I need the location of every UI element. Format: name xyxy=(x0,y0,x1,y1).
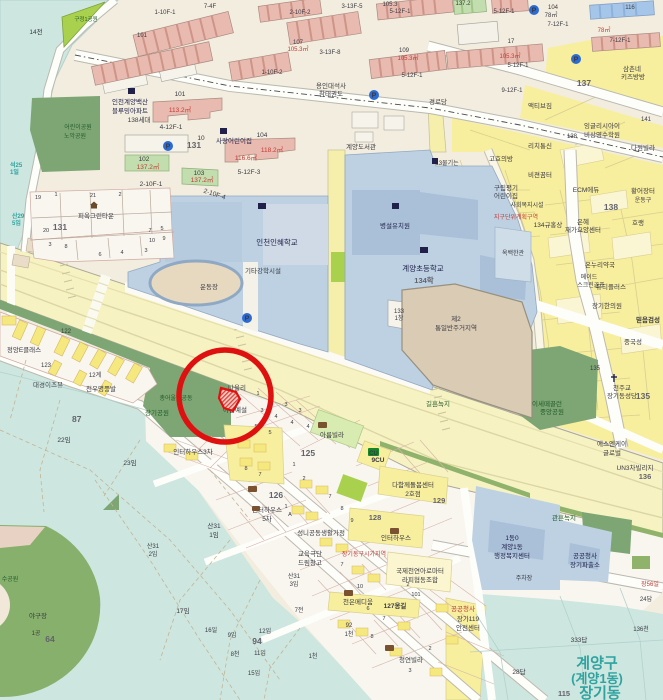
svg-text:2임: 2임 xyxy=(149,550,158,558)
svg-text:호랭: 호랭 xyxy=(632,218,644,227)
svg-text:중국성: 중국성 xyxy=(624,337,642,346)
svg-text:1-10F-2: 1-10F-2 xyxy=(261,70,283,76)
svg-text:잉글리시아이: 잉글리시아이 xyxy=(584,121,620,130)
svg-text:24답: 24답 xyxy=(640,596,653,603)
svg-text:석25: 석25 xyxy=(10,161,23,169)
svg-text:105.3: 105.3 xyxy=(382,2,398,8)
svg-text:105.3㎡: 105.3㎡ xyxy=(397,54,418,62)
svg-text:5: 5 xyxy=(160,226,163,232)
svg-text:안전센터: 안전센터 xyxy=(456,623,480,632)
svg-text:A: A xyxy=(288,512,292,518)
svg-text:1일: 1일 xyxy=(10,168,19,176)
svg-text:재가요양센터: 재가요양센터 xyxy=(565,225,601,234)
svg-text:5-12F-3: 5-12F-3 xyxy=(238,169,261,176)
svg-text:뷰티플러스: 뷰티플러스 xyxy=(596,282,626,291)
svg-text:계양1동: 계양1동 xyxy=(501,542,523,551)
svg-text:1천: 1천 xyxy=(309,652,318,660)
svg-text:드림창고: 드림창고 xyxy=(298,559,322,567)
svg-text:공공청사: 공공청사 xyxy=(451,604,475,613)
svg-text:어린이집: 어린이집 xyxy=(494,191,518,200)
svg-text:3-13F-5: 3-13F-5 xyxy=(341,4,363,10)
svg-text:1-10F-1: 1-10F-1 xyxy=(154,10,176,16)
svg-text:78㎡: 78㎡ xyxy=(598,26,611,34)
svg-text:22임: 22임 xyxy=(57,436,70,444)
svg-text:136천: 136천 xyxy=(633,625,649,633)
svg-text:5-12F-1: 5-12F-1 xyxy=(389,9,411,15)
svg-text:고효의방: 고효의방 xyxy=(489,154,513,163)
svg-text:135: 135 xyxy=(590,366,601,372)
svg-text:8: 8 xyxy=(244,466,247,472)
svg-text:운동장: 운동장 xyxy=(200,282,218,291)
svg-text:7: 7 xyxy=(328,494,331,500)
svg-text:7: 7 xyxy=(382,616,385,622)
svg-text:다함께돌봄센터: 다함께돌봄센터 xyxy=(392,480,434,489)
svg-text:9임: 9임 xyxy=(228,631,237,639)
svg-text:1: 1 xyxy=(256,391,259,397)
svg-text:14전: 14전 xyxy=(29,27,42,36)
svg-text:2-10F-1: 2-10F-1 xyxy=(140,181,163,188)
svg-text:101: 101 xyxy=(175,91,186,98)
svg-text:3: 3 xyxy=(298,408,301,414)
svg-text:중앙공원: 중앙공원 xyxy=(540,407,564,416)
svg-text:128: 128 xyxy=(369,513,382,522)
svg-text:산31: 산31 xyxy=(147,542,160,550)
svg-text:7-12F-1: 7-12F-1 xyxy=(547,22,569,28)
svg-text:131: 131 xyxy=(53,222,67,232)
svg-text:78㎡: 78㎡ xyxy=(545,11,558,19)
svg-text:28답: 28답 xyxy=(512,668,525,676)
svg-text:12임: 12임 xyxy=(259,627,271,635)
svg-text:총어울림공동: 총어울림공동 xyxy=(159,394,193,402)
svg-text:계양도서관: 계양도서관 xyxy=(346,142,376,151)
svg-text:1: 1 xyxy=(284,504,287,510)
svg-text:3: 3 xyxy=(260,408,263,414)
svg-text:비상영수학원: 비상영수학원 xyxy=(584,130,620,139)
svg-text:9-12F-1: 9-12F-1 xyxy=(501,88,523,94)
svg-text:138세대: 138세대 xyxy=(128,115,151,124)
svg-text:133: 133 xyxy=(394,309,405,315)
svg-text:3: 3 xyxy=(284,402,287,408)
svg-text:3임: 3임 xyxy=(290,580,299,588)
svg-text:관훈녹지: 관훈녹지 xyxy=(552,513,576,522)
svg-text:3: 3 xyxy=(48,242,51,248)
svg-text:7: 7 xyxy=(258,472,261,478)
svg-text:옥백한관: 옥백한관 xyxy=(502,249,525,257)
svg-text:병설유치원: 병설유치원 xyxy=(380,221,410,230)
svg-text:통일반주거지역: 통일반주거지역 xyxy=(435,323,477,332)
svg-text:공공청사: 공공청사 xyxy=(573,551,597,560)
svg-text:CU: CU xyxy=(369,451,378,457)
svg-text:4: 4 xyxy=(306,424,309,430)
svg-text:115: 115 xyxy=(558,689,570,698)
svg-text:은혜: 은혜 xyxy=(577,217,589,226)
svg-text:105.3㎡: 105.3㎡ xyxy=(287,45,308,53)
svg-text:4: 4 xyxy=(290,420,293,426)
svg-text:10: 10 xyxy=(357,584,363,590)
svg-text:19: 19 xyxy=(35,195,41,201)
svg-text:333답: 333답 xyxy=(571,636,588,644)
svg-text:137: 137 xyxy=(577,78,591,88)
svg-text:2-10F-2: 2-10F-2 xyxy=(289,10,311,16)
svg-text:1동0: 1동0 xyxy=(505,534,519,542)
svg-text:94: 94 xyxy=(252,636,262,646)
svg-text:107: 107 xyxy=(293,40,304,46)
svg-text:인천계양백산: 인천계양백산 xyxy=(112,97,148,106)
svg-text:(계양1동): (계양1동) xyxy=(571,671,623,686)
svg-text:황어장터: 황어장터 xyxy=(631,186,655,195)
svg-text:125: 125 xyxy=(301,448,315,458)
svg-text:10: 10 xyxy=(149,238,155,244)
svg-text:138: 138 xyxy=(567,134,578,140)
svg-text:3-13F-8: 3-13F-8 xyxy=(319,50,341,56)
svg-text:5-12F-1: 5-12F-1 xyxy=(507,63,529,69)
svg-text:7-4F: 7-4F xyxy=(204,4,217,10)
svg-text:계양구: 계양구 xyxy=(576,655,618,672)
svg-text:인터하우스: 인터하우스 xyxy=(381,533,411,542)
svg-text:137.2㎡: 137.2㎡ xyxy=(137,162,160,171)
svg-text:구립평기: 구립평기 xyxy=(494,183,518,192)
svg-text:사회복지시설: 사회복지시설 xyxy=(510,201,543,209)
svg-text:수공원: 수공원 xyxy=(2,575,19,583)
svg-text:135: 135 xyxy=(636,391,650,401)
svg-text:5-12F-1: 5-12F-1 xyxy=(493,9,515,15)
svg-text:인터하우스3차: 인터하우스3차 xyxy=(173,447,213,456)
svg-text:101: 101 xyxy=(137,33,148,39)
svg-text:장기119: 장기119 xyxy=(457,614,480,623)
svg-text:23임: 23임 xyxy=(123,459,136,467)
svg-text:20: 20 xyxy=(43,228,49,234)
svg-text:산31: 산31 xyxy=(207,521,221,530)
svg-text:4-12F-1: 4-12F-1 xyxy=(160,124,183,131)
svg-text:장기한의원: 장기한의원 xyxy=(592,301,622,310)
svg-text:P: P xyxy=(245,316,250,323)
svg-text:137.2㎡: 137.2㎡ xyxy=(191,175,214,184)
svg-text:천우명풍발: 천우명풍발 xyxy=(86,384,116,393)
svg-text:2: 2 xyxy=(118,192,121,198)
svg-text:이세떼끌런: 이세떼끌런 xyxy=(532,399,562,408)
svg-text:129: 129 xyxy=(433,496,446,505)
svg-text:92: 92 xyxy=(346,623,353,629)
svg-text:1: 1 xyxy=(54,192,57,198)
svg-text:2: 2 xyxy=(428,646,431,652)
svg-text:104: 104 xyxy=(548,5,559,11)
svg-text:천은메디움: 천은메디움 xyxy=(343,597,373,606)
svg-text:ECM에듀: ECM에듀 xyxy=(573,185,599,194)
svg-text:2: 2 xyxy=(302,476,305,482)
svg-text:15임: 15임 xyxy=(248,669,260,677)
svg-text:장기동: 장기동 xyxy=(579,684,621,700)
svg-text:7: 7 xyxy=(340,562,343,568)
svg-text:4: 4 xyxy=(120,250,123,256)
svg-text:메이드: 메이드 xyxy=(581,273,598,281)
svg-text:UN3차빌리지: UN3차빌리지 xyxy=(617,463,654,472)
svg-text:5: 5 xyxy=(268,430,271,436)
svg-text:134학: 134학 xyxy=(414,275,434,285)
svg-text:제2: 제2 xyxy=(451,315,461,323)
svg-text:P: P xyxy=(532,8,537,15)
svg-text:국제천연아로마터: 국제천연아로마터 xyxy=(396,566,444,575)
svg-text:천주교: 천주교 xyxy=(613,383,631,392)
svg-text:야구장: 야구장 xyxy=(29,611,47,620)
svg-text:에스엔케이: 에스엔케이 xyxy=(597,439,627,448)
svg-text:다원빌라: 다원빌라 xyxy=(631,143,655,152)
svg-text:5임: 5임 xyxy=(12,219,21,227)
svg-text:7-12F-1: 7-12F-1 xyxy=(609,38,631,44)
svg-text:138: 138 xyxy=(604,202,618,212)
svg-text:5-12F-1: 5-12F-1 xyxy=(401,73,423,79)
svg-text:8: 8 xyxy=(64,244,67,250)
svg-text:정앙E클래스: 정앙E클래스 xyxy=(7,345,41,354)
svg-text:87: 87 xyxy=(72,414,82,424)
svg-text:산31: 산31 xyxy=(288,572,301,580)
svg-text:행정복지센터: 행정복지센터 xyxy=(494,551,530,560)
svg-text:교육극단: 교육극단 xyxy=(298,549,322,558)
svg-text:1: 1 xyxy=(292,462,295,468)
svg-text:64: 64 xyxy=(45,634,55,644)
svg-text:2호점: 2호점 xyxy=(405,490,421,498)
svg-text:인천인혜학교: 인천인혜학교 xyxy=(256,237,297,247)
svg-text:노악공원: 노악공원 xyxy=(64,132,86,140)
svg-text:104: 104 xyxy=(257,132,268,139)
svg-text:라피협동조합: 라피협동조합 xyxy=(402,575,438,584)
svg-text:5차: 5차 xyxy=(262,514,272,523)
svg-text:134규홍상: 134규홍상 xyxy=(534,220,563,229)
svg-text:블루밍아파트: 블루밍아파트 xyxy=(112,106,148,115)
svg-text:101: 101 xyxy=(411,592,420,598)
svg-text:105.3㎡: 105.3㎡ xyxy=(499,52,520,60)
svg-text:102: 102 xyxy=(139,156,150,163)
svg-text:8: 8 xyxy=(370,634,373,640)
svg-text:믿음검성: 믿음검성 xyxy=(636,315,660,324)
svg-text:136: 136 xyxy=(639,472,652,481)
svg-text:장기동구시가지역: 장기동구시가지역 xyxy=(342,550,386,558)
svg-text:용인대석사: 용인대석사 xyxy=(316,81,346,90)
svg-text:성니공동생활가정: 성니공동생활가정 xyxy=(297,528,345,537)
svg-text:6: 6 xyxy=(366,606,369,612)
svg-text:장56일: 장56일 xyxy=(641,580,659,588)
svg-text:116: 116 xyxy=(625,5,635,11)
svg-text:계양초등학교: 계양초등학교 xyxy=(402,263,443,273)
svg-text:11임: 11임 xyxy=(254,649,266,657)
svg-text:116.6㎡: 116.6㎡ xyxy=(235,153,258,162)
svg-text:사랑어린이집: 사랑어린이집 xyxy=(216,136,252,145)
svg-text:1창: 1창 xyxy=(395,314,404,322)
svg-text:운동구: 운동구 xyxy=(635,197,652,204)
svg-text:113.2㎡: 113.2㎡ xyxy=(169,105,192,114)
svg-text:6: 6 xyxy=(98,252,101,258)
svg-text:127옹길: 127옹길 xyxy=(384,601,407,610)
svg-text:8: 8 xyxy=(340,506,343,512)
svg-text:109: 109 xyxy=(399,48,410,54)
svg-text:기타강학시설: 기타강학시설 xyxy=(245,266,281,275)
svg-text:1임: 1임 xyxy=(209,531,219,539)
svg-text:산29: 산29 xyxy=(12,212,25,220)
svg-text:아름빌라: 아름빌라 xyxy=(320,430,344,439)
svg-text:글로벌: 글로벌 xyxy=(603,448,621,457)
svg-text:액티브짐: 액티브짐 xyxy=(528,101,552,110)
svg-text:장기파출소: 장기파출소 xyxy=(570,560,600,569)
svg-text:P: P xyxy=(372,93,377,100)
svg-text:126: 126 xyxy=(269,490,283,500)
svg-text:리치통신: 리치통신 xyxy=(528,141,552,150)
svg-text:141: 141 xyxy=(641,117,652,123)
svg-text:지구단위계획구역: 지구단위계획구역 xyxy=(494,213,538,221)
svg-text:123: 123 xyxy=(41,363,52,369)
svg-text:103: 103 xyxy=(194,170,205,177)
svg-text:구정1공원: 구정1공원 xyxy=(74,15,97,23)
svg-text:7: 7 xyxy=(148,228,151,234)
svg-text:길훈녹지: 길훈녹지 xyxy=(426,399,450,408)
svg-text:9: 9 xyxy=(350,518,353,524)
svg-text:16일: 16일 xyxy=(205,626,217,634)
svg-text:피옥그린타운: 피옥그린타운 xyxy=(78,211,114,220)
svg-text:장기동성당: 장기동성당 xyxy=(607,391,637,400)
svg-text:12계: 12계 xyxy=(89,371,101,379)
svg-text:키즈방방: 키즈방방 xyxy=(621,72,645,81)
svg-text:P: P xyxy=(166,144,171,151)
svg-text:주차장: 주차장 xyxy=(516,574,533,582)
svg-text:8천: 8천 xyxy=(231,650,240,658)
svg-text:17: 17 xyxy=(508,39,515,45)
svg-text:경로당: 경로당 xyxy=(429,97,447,106)
svg-text:13물기는: 13물기는 xyxy=(435,159,459,167)
svg-text:삼촌네: 삼촌네 xyxy=(623,64,641,73)
svg-text:3: 3 xyxy=(408,668,411,674)
svg-text:137.2: 137.2 xyxy=(455,1,471,7)
svg-text:3: 3 xyxy=(144,248,147,254)
svg-text:7전: 7전 xyxy=(295,606,304,614)
svg-text:118.2㎡: 118.2㎡ xyxy=(261,145,284,154)
svg-text:어린이공원: 어린이공원 xyxy=(64,123,92,131)
svg-text:1공: 1공 xyxy=(32,630,41,637)
svg-text:비젼꿈터: 비젼꿈터 xyxy=(528,170,552,179)
svg-text:9: 9 xyxy=(162,236,165,242)
svg-text:9CU: 9CU xyxy=(371,457,384,464)
svg-text:10: 10 xyxy=(197,135,205,142)
svg-text:1천: 1천 xyxy=(345,630,354,638)
svg-text:P: P xyxy=(574,57,579,64)
svg-text:17임: 17임 xyxy=(176,607,189,615)
svg-text:청연빌라: 청연빌라 xyxy=(399,655,423,664)
svg-text:21: 21 xyxy=(90,193,96,199)
svg-text:장기공원: 장기공원 xyxy=(145,408,169,417)
svg-text:122: 122 xyxy=(61,329,72,335)
svg-text:참태권도: 참태권도 xyxy=(319,90,343,98)
svg-text:온누리약국: 온누리약국 xyxy=(585,260,615,269)
svg-text:4: 4 xyxy=(274,414,277,420)
